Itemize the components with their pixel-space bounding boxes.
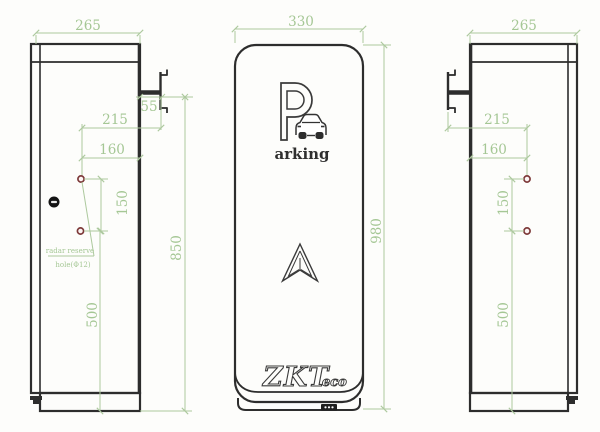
left-dim-hole-spacing: 150	[84, 179, 131, 231]
left-dim-500-label: 500	[85, 302, 101, 328]
brand-zkt: ZKT	[262, 362, 330, 393]
radar-note-line1: radar reserve	[46, 247, 94, 255]
arrow-icon	[283, 244, 318, 281]
right-dim-500-label: 500	[496, 302, 512, 328]
front-view: arking ZKT eco 330 980	[235, 14, 391, 411]
front-dim-height-label: 980	[369, 218, 385, 244]
right-dim-hole-spacing: 150	[496, 179, 524, 231]
right-dim-160-label: 160	[481, 142, 507, 158]
left-side-view: 265 55 215 160 150	[30, 18, 193, 411]
left-base	[40, 393, 140, 411]
brand-logo: ZKT eco	[262, 362, 347, 393]
right-side-view: 265 215 160 150 500	[448, 18, 579, 411]
left-dim-850-label: 850	[169, 235, 185, 261]
right-dim-hole-to-edge: 160	[470, 142, 527, 158]
front-dim-height: 980	[363, 45, 391, 409]
parking-logo: arking	[274, 83, 330, 163]
brand-eco: eco	[322, 375, 347, 390]
right-base	[470, 393, 568, 411]
right-dim-hole-to-base: 500	[496, 231, 512, 411]
right-dim-215-label: 215	[484, 112, 510, 128]
front-dim-width-label: 330	[288, 14, 314, 30]
radar-hole-note: radar reserve hole(Φ12)	[46, 182, 94, 269]
left-cabinet-outline	[31, 44, 140, 393]
left-dim-width-label: 265	[75, 18, 101, 34]
left-dim-150-label: 150	[115, 190, 131, 216]
right-arm-bracket	[448, 70, 471, 114]
lock-icon	[49, 197, 60, 208]
left-radar-hole-upper	[78, 176, 84, 182]
left-dim-bracket-offset: 55	[136, 94, 193, 130]
left-dim-160-label: 160	[99, 142, 125, 158]
front-dim-width: 330	[235, 14, 363, 43]
right-dim-150-label: 150	[496, 190, 512, 216]
parking-logo-text: arking	[274, 145, 330, 163]
left-radar-hole-lower	[77, 228, 83, 234]
front-cabinet-outline	[235, 45, 363, 402]
right-dim-width-label: 265	[511, 18, 537, 34]
barrier-gate-technical-drawing: 265 55 215 160 150	[0, 0, 600, 432]
car-icon	[296, 115, 326, 140]
left-dim-hole-to-base: 500	[85, 231, 101, 411]
radar-note-line2: hole(Φ12)	[55, 261, 90, 269]
right-radar-hole-lower	[524, 228, 530, 234]
right-cabinet-outline	[470, 44, 577, 393]
front-connector	[321, 404, 337, 411]
left-dim-overall-height: 850	[140, 97, 192, 411]
front-base	[238, 398, 360, 410]
right-dim-width: 265	[470, 18, 577, 44]
left-dim-hole-to-edge: 160	[82, 142, 140, 158]
right-radar-hole-upper	[524, 176, 530, 182]
left-dim-215-label: 215	[102, 112, 128, 128]
left-dim-bracket-offset-label: 55	[140, 99, 157, 115]
left-dim-width: 265	[36, 18, 140, 44]
